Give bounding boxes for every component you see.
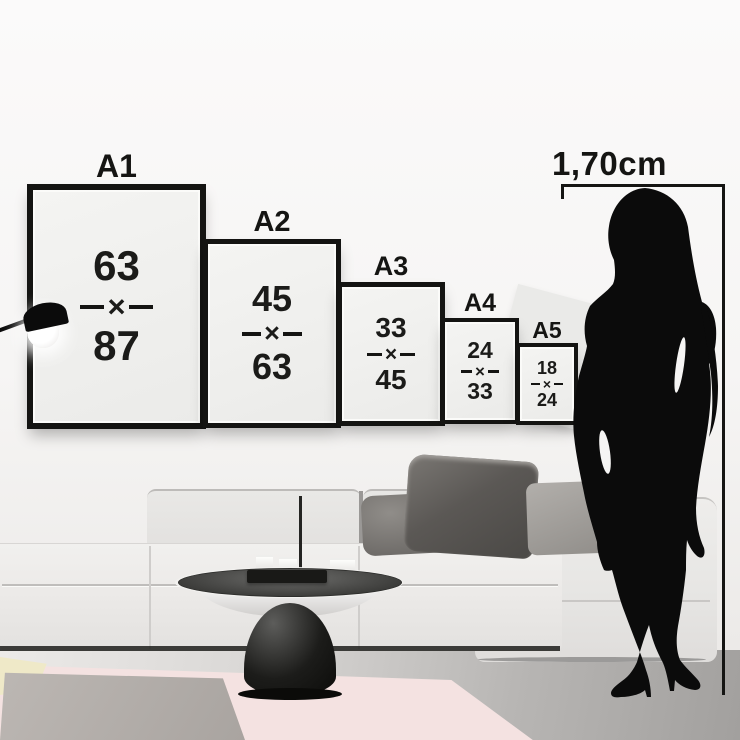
frame-a4-width-value: 24 — [467, 339, 493, 362]
frame-a4: A4 24 × 33 — [441, 318, 519, 424]
dash-left — [80, 305, 104, 309]
frame-a3-label: A3 — [342, 251, 440, 282]
multiply-sign: × — [264, 320, 280, 347]
frame-a1-label: A1 — [33, 148, 200, 185]
multiply-divider: × — [242, 320, 302, 347]
frame-a4-label: A4 — [445, 289, 515, 318]
multiply-divider: × — [367, 344, 415, 365]
frame-a3-width-value: 33 — [375, 314, 406, 343]
pillow-dark-gray — [403, 454, 539, 560]
frame-a3-poster: 33 × 45 — [342, 287, 440, 421]
woman-silhouette — [545, 180, 740, 700]
frame-a4-poster: 24 × 33 — [445, 322, 515, 420]
table-cord — [299, 496, 302, 574]
dash-left — [461, 370, 472, 373]
multiply-sign: × — [107, 291, 125, 322]
dash-left — [531, 383, 540, 385]
frame-a2-width-value: 45 — [252, 281, 292, 318]
dash-left — [367, 353, 382, 356]
dash-right — [488, 370, 499, 373]
frame-a4-height-value: 33 — [467, 380, 493, 403]
poster-size-guide-scene: 1,70cm A1 63 × 87 A2 45 × 63 — [0, 0, 740, 740]
woman-body — [573, 188, 716, 697]
frame-a2-label: A2 — [208, 206, 336, 239]
couch-seat-vertical-seam — [149, 546, 151, 649]
multiply-divider: × — [461, 363, 499, 380]
dash-right — [400, 353, 415, 356]
multiply-sign: × — [475, 363, 485, 380]
dash-right — [283, 332, 302, 336]
gray-rug — [0, 670, 245, 740]
frame-a3: A3 33 × 45 — [337, 282, 445, 426]
height-measurement-label: 1,70cm — [552, 145, 732, 183]
multiply-sign: × — [385, 344, 397, 365]
frame-a2-height-value: 63 — [252, 349, 292, 386]
multiply-divider: × — [80, 291, 152, 322]
dash-left — [242, 332, 261, 336]
dash-right — [129, 305, 153, 309]
frame-a1-height-value: 87 — [93, 325, 140, 368]
frame-a1-width-value: 63 — [93, 245, 140, 288]
frame-a2-poster: 45 × 63 — [208, 244, 336, 423]
frame-a2: A2 45 × 63 — [203, 239, 341, 428]
frame-a3-height-value: 45 — [375, 366, 406, 395]
table-tray — [247, 570, 327, 583]
table-base-foot — [238, 688, 342, 700]
